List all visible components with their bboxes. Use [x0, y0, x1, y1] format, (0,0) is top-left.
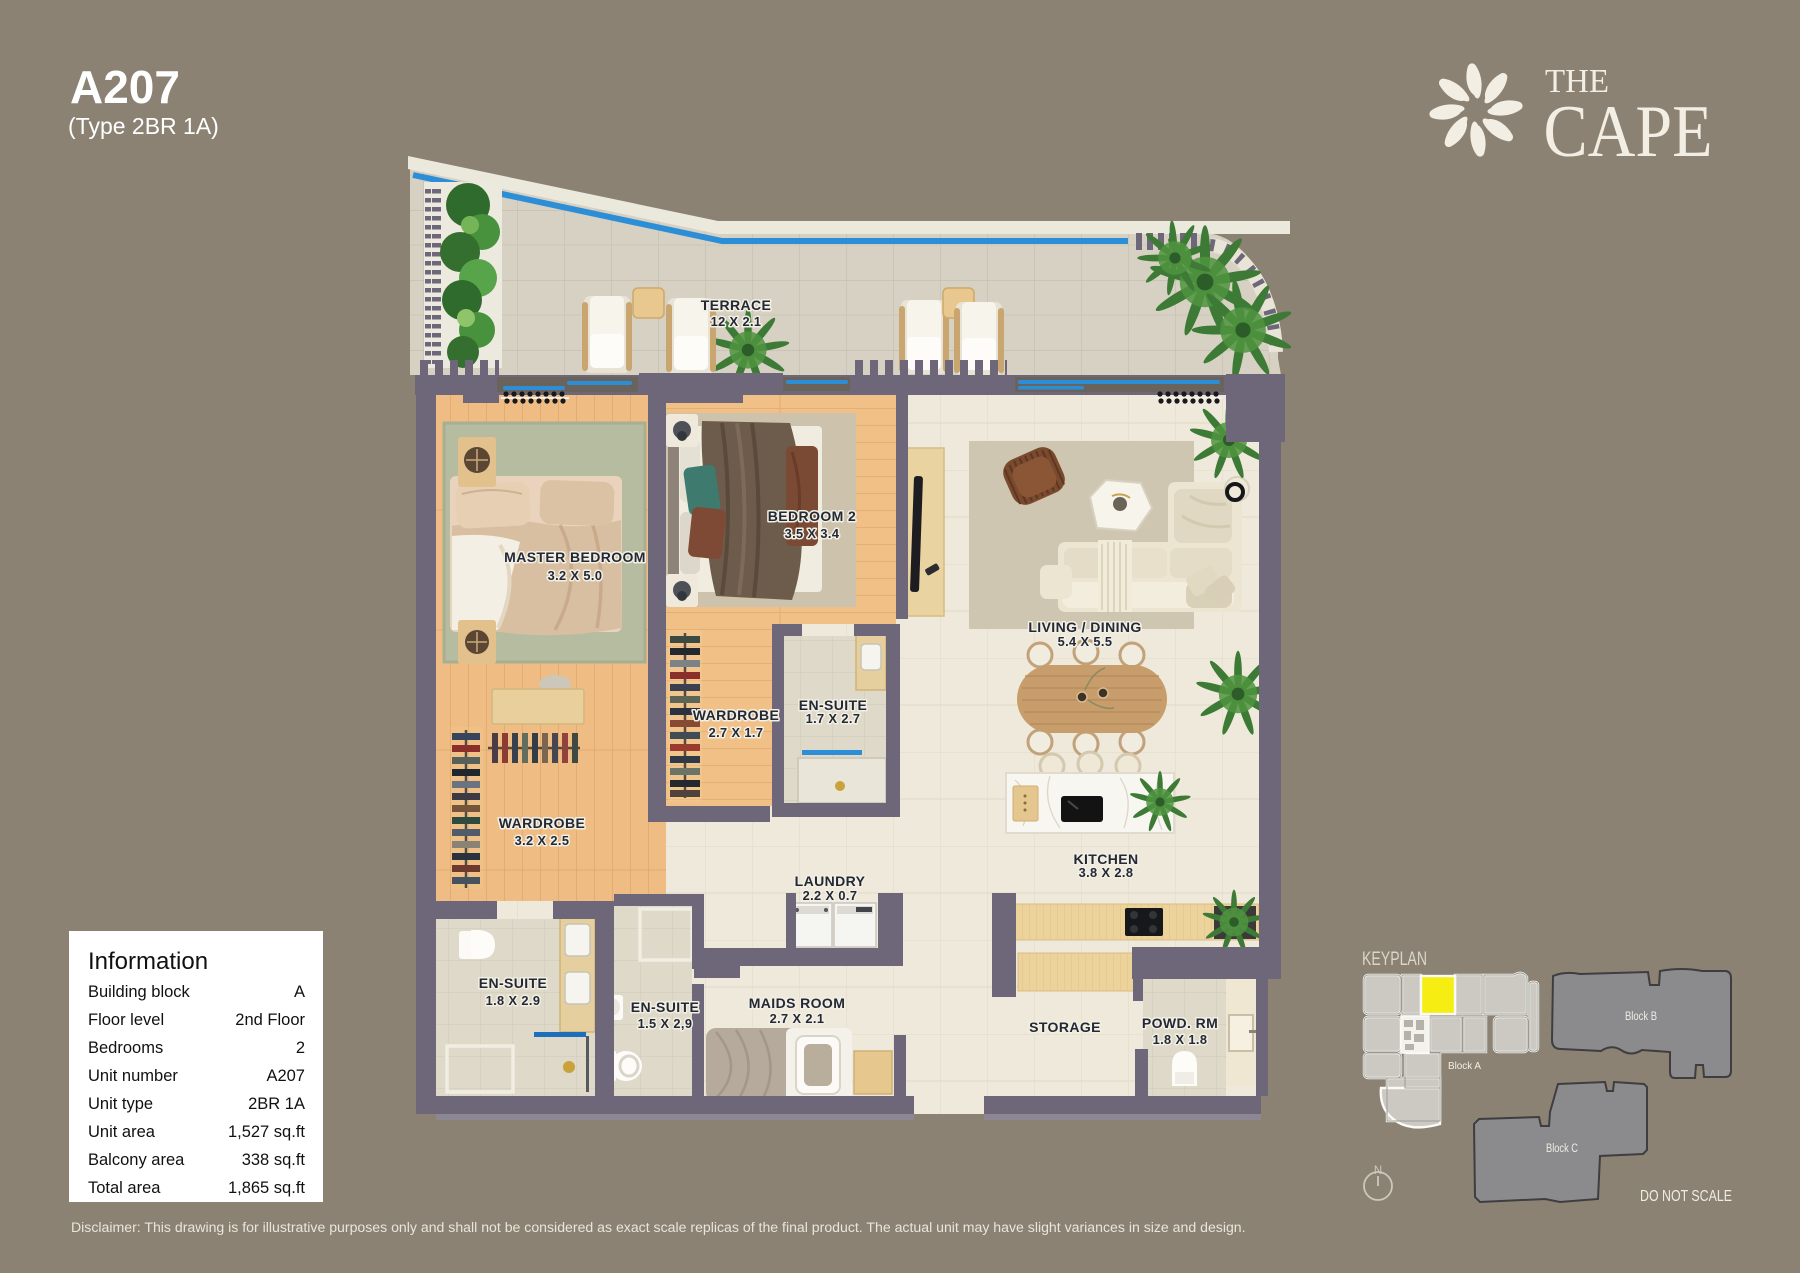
svg-text:(Type 2BR 1A): (Type 2BR 1A): [68, 113, 219, 139]
svg-text:Bedrooms: Bedrooms: [88, 1039, 163, 1057]
svg-text:Information: Information: [88, 948, 208, 975]
svg-text:1.8 X 1.8: 1.8 X 1.8: [1153, 1032, 1208, 1047]
svg-text:WARDROBE: WARDROBE: [499, 815, 585, 831]
svg-text:STORAGE: STORAGE: [1029, 1019, 1101, 1035]
svg-text:CAPE: CAPE: [1544, 91, 1713, 173]
svg-text:WARDROBE: WARDROBE: [693, 707, 779, 723]
svg-text:Total area: Total area: [88, 1179, 161, 1197]
svg-text:1.8 X 2.9: 1.8 X 2.9: [486, 993, 541, 1008]
svg-text:3.8 X 2.8: 3.8 X 2.8: [1079, 865, 1134, 880]
svg-text:Balcony area: Balcony area: [88, 1151, 185, 1169]
svg-text:338 sq.ft: 338 sq.ft: [242, 1151, 306, 1169]
svg-text:LAUNDRY: LAUNDRY: [795, 873, 866, 889]
svg-text:5.4 X 5.5: 5.4 X 5.5: [1058, 634, 1113, 649]
svg-text:3.2 X 5.0: 3.2 X 5.0: [548, 568, 603, 583]
svg-text:KEYPLAN: KEYPLAN: [1362, 948, 1427, 970]
svg-text:Block C: Block C: [1546, 1143, 1578, 1155]
svg-text:Disclaimer: This drawing is fo: Disclaimer: This drawing is for illustra…: [71, 1219, 1246, 1235]
svg-text:MASTER BEDROOM: MASTER BEDROOM: [504, 549, 646, 565]
svg-text:MAIDS ROOM: MAIDS ROOM: [749, 995, 846, 1011]
svg-text:TERRACE: TERRACE: [701, 297, 771, 313]
svg-text:Floor level: Floor level: [88, 1011, 164, 1029]
svg-text:2.7 X 1.7: 2.7 X 1.7: [709, 725, 764, 740]
svg-text:1.5 X 2,9: 1.5 X 2,9: [638, 1016, 693, 1031]
svg-text:A: A: [294, 983, 305, 1001]
svg-text:A207: A207: [266, 1067, 305, 1085]
svg-text:3.2 X 2.5: 3.2 X 2.5: [515, 833, 570, 848]
svg-text:3.5 X 3.4: 3.5 X 3.4: [785, 526, 840, 541]
svg-text:2: 2: [296, 1039, 305, 1057]
svg-text:2.7 X 2.1: 2.7 X 2.1: [770, 1011, 825, 1026]
svg-text:Unit type: Unit type: [88, 1095, 153, 1113]
svg-text:N: N: [1374, 1165, 1382, 1177]
svg-text:Block B: Block B: [1625, 1011, 1657, 1023]
svg-text:DO NOT SCALE: DO NOT SCALE: [1640, 1188, 1732, 1205]
svg-text:Unit area: Unit area: [88, 1123, 156, 1141]
svg-text:EN-SUITE: EN-SUITE: [631, 999, 700, 1015]
svg-text:EN-SUITE: EN-SUITE: [479, 975, 548, 991]
svg-text:1,527 sq.ft: 1,527 sq.ft: [228, 1123, 305, 1141]
svg-text:LIVING / DINING: LIVING / DINING: [1028, 619, 1141, 635]
svg-text:2.2 X 0.7: 2.2 X 0.7: [803, 888, 858, 903]
svg-text:2BR 1A: 2BR 1A: [248, 1095, 305, 1113]
svg-text:Block A: Block A: [1448, 1060, 1481, 1072]
svg-text:A207: A207: [70, 61, 180, 113]
svg-text:BEDROOM 2: BEDROOM 2: [768, 508, 856, 524]
svg-text:1,865 sq.ft: 1,865 sq.ft: [228, 1179, 305, 1197]
svg-text:Unit number: Unit number: [88, 1067, 178, 1085]
svg-text:12 X 2.1: 12 X 2.1: [711, 314, 762, 329]
svg-text:Building block: Building block: [88, 983, 191, 1001]
svg-text:1.7 X 2.7: 1.7 X 2.7: [806, 711, 861, 726]
svg-text:2nd Floor: 2nd Floor: [235, 1011, 305, 1029]
svg-text:POWD. RM: POWD. RM: [1142, 1015, 1218, 1031]
